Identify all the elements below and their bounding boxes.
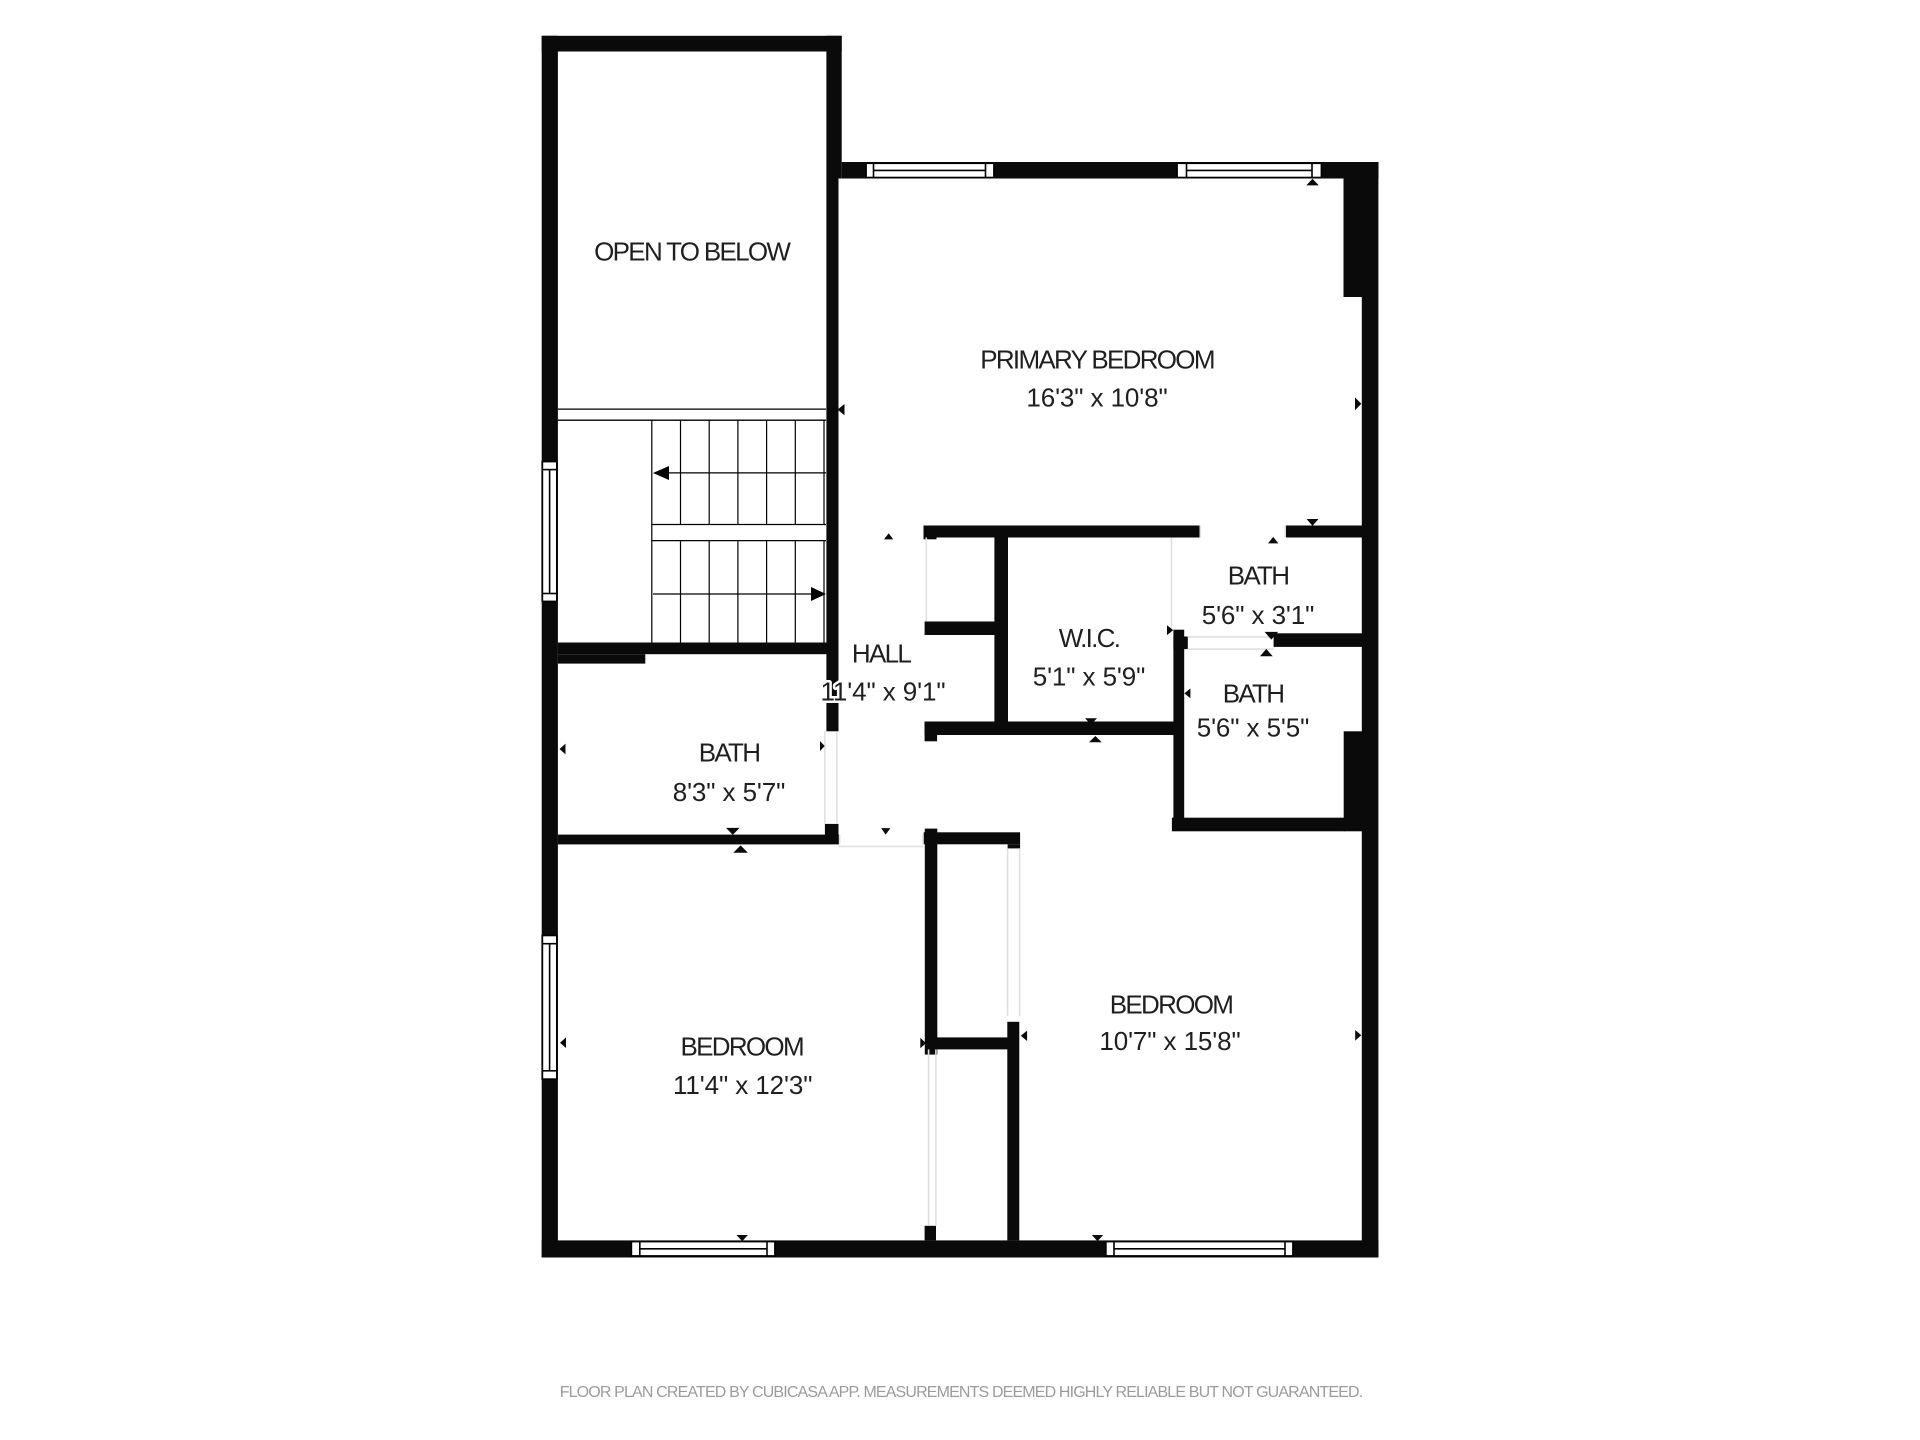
svg-text:11'4" x 9'1": 11'4" x 9'1" [820, 677, 945, 707]
svg-text:BATH: BATH [1223, 679, 1284, 709]
svg-text:BEDROOM: BEDROOM [680, 1032, 802, 1062]
svg-text:HALL: HALL [852, 639, 911, 669]
svg-text:FLOOR PLAN CREATED BY CUBICASA: FLOOR PLAN CREATED BY CUBICASA APP. MEAS… [560, 1384, 1363, 1401]
svg-text:10'7" x 15'8": 10'7" x 15'8" [1099, 1026, 1240, 1056]
svg-text:OPEN TO BELOW: OPEN TO BELOW [594, 237, 791, 267]
svg-text:PRIMARY BEDROOM: PRIMARY BEDROOM [980, 345, 1214, 375]
svg-text:BATH: BATH [699, 738, 760, 768]
svg-text:16'3" x 10'8": 16'3" x 10'8" [1026, 383, 1167, 413]
svg-text:W.I.C.: W.I.C. [1059, 623, 1120, 653]
svg-text:8'3" x 5'7": 8'3" x 5'7" [673, 777, 786, 807]
svg-text:5'6" x 3'1": 5'6" x 3'1" [1202, 600, 1315, 630]
svg-text:BATH: BATH [1228, 561, 1289, 591]
svg-text:BEDROOM: BEDROOM [1110, 990, 1232, 1020]
svg-text:5'6" x 5'5": 5'6" x 5'5" [1197, 713, 1310, 743]
svg-text:11'4" x 12'3": 11'4" x 12'3" [673, 1070, 812, 1100]
svg-text:5'1" x 5'9": 5'1" x 5'9" [1033, 662, 1146, 692]
